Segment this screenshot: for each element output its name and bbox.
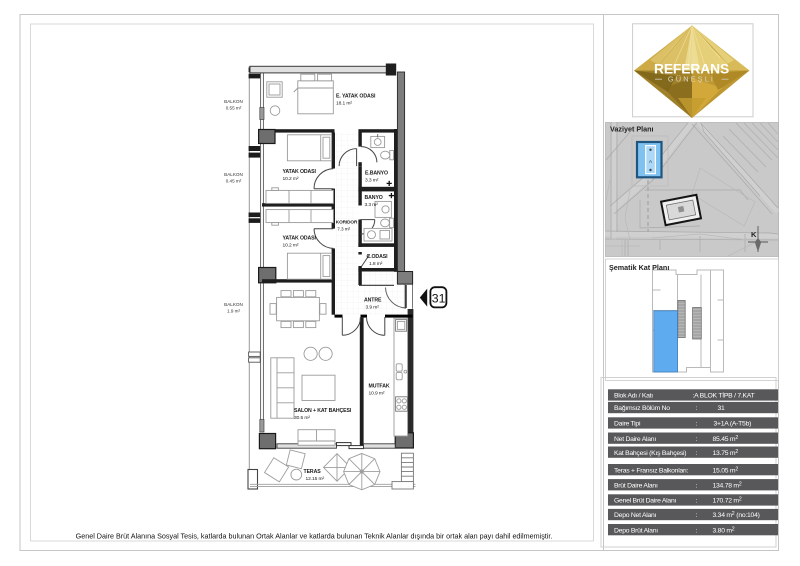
svg-text:3.3 m²: 3.3 m² [365,202,379,208]
svg-text:Depo Net Alanı: Depo Net Alanı [614,512,657,519]
svg-text:Bağımsız Bölüm No: Bağımsız Bölüm No [614,405,670,412]
svg-text:Net Daire Alanı: Net Daire Alanı [614,436,656,443]
svg-text:30.5 m²: 30.5 m² [294,415,310,421]
svg-text:18.1 m²: 18.1 m² [336,101,352,107]
svg-text:0.45 m²: 0.45 m² [226,179,242,184]
svg-text:KORIDOR: KORIDOR [336,220,358,225]
svg-text:Daire Tipi: Daire Tipi [614,421,641,428]
svg-text:K: K [751,230,757,239]
svg-text:1.8 m²: 1.8 m² [369,261,383,267]
svg-text:GÜNEŞLİ: GÜNEŞLİ [668,75,715,84]
svg-text:85.45 m2: 85.45 m2 [713,435,739,443]
svg-text:MUTFAK: MUTFAK [369,384,390,390]
svg-text:7.3 m²: 7.3 m² [337,227,350,232]
svg-text:Blok Adı / Katı: Blok Adı / Katı [614,393,653,400]
svg-text:10.9 m²: 10.9 m² [369,391,385,397]
svg-text:Kat Bahçesi (Kış Bahçesi): Kat Bahçesi (Kış Bahçesi) [614,450,686,457]
svg-text:3.3 m²: 3.3 m² [365,178,379,184]
svg-text:3.9 m²: 3.9 m² [366,305,380,311]
svg-text::A BLOK TİPB / 7.KAT: :A BLOK TİPB / 7.KAT [693,391,755,400]
svg-text:170.72 m2: 170.72 m2 [713,497,742,505]
svg-text:3.80 m2: 3.80 m2 [713,526,735,534]
svg-text:Şematik Kat Planı: Şematik Kat Planı [609,263,669,272]
svg-text:A: A [649,159,652,164]
svg-text:E.BANYO: E.BANYO [365,171,388,177]
svg-text:E. YATAK ODASI: E. YATAK ODASI [336,94,376,100]
svg-text:ANTRE: ANTRE [364,298,382,304]
svg-text:SALON + KAT BAHÇESI: SALON + KAT BAHÇESI [294,408,352,414]
svg-text:12.15 m²: 12.15 m² [306,476,325,482]
svg-text:134.78 m2: 134.78 m2 [713,481,742,489]
svg-text:YATAK ODASI: YATAK ODASI [283,236,317,242]
svg-text:Genel Brüt Daire Alanı: Genel Brüt Daire Alanı [614,498,676,505]
svg-text:Brüt Daire Alanı: Brüt Daire Alanı [614,482,658,489]
svg-text:Teras + Fransız Balkonları:: Teras + Fransız Balkonları: [614,467,689,474]
svg-text:BALKON: BALKON [224,99,243,104]
svg-text:3+1A (A-T5b): 3+1A (A-T5b) [714,421,752,428]
svg-text:C.ODASI: C.ODASI [367,254,389,260]
svg-text:31: 31 [718,405,726,412]
svg-text:TERAS: TERAS [304,469,322,475]
svg-text:YATAK ODASI: YATAK ODASI [283,169,317,175]
svg-text:BANYO: BANYO [365,195,383,201]
svg-text:31: 31 [432,291,446,305]
svg-text:BALKON: BALKON [224,302,243,307]
svg-text:3.34 m2 (no:104): 3.34 m2 (no:104) [713,511,760,519]
svg-text:1.9 m²: 1.9 m² [227,309,240,314]
svg-text:10.2 m²: 10.2 m² [283,243,299,249]
svg-text:15.05 m2: 15.05 m2 [713,466,739,474]
svg-text:Depo Brüt Alanı: Depo Brüt Alanı [614,527,658,534]
svg-text:10.2 m²: 10.2 m² [283,176,299,182]
svg-text:13.75 m2: 13.75 m2 [713,449,739,457]
svg-text:Vaziyet Planı: Vaziyet Planı [610,125,654,134]
svg-text:0.55 m²: 0.55 m² [226,106,242,111]
svg-text:BALKON: BALKON [224,172,243,177]
svg-text:Genel Daire Brüt Alanına Sosya: Genel Daire Brüt Alanına Sosyal Tesis, k… [76,532,553,541]
